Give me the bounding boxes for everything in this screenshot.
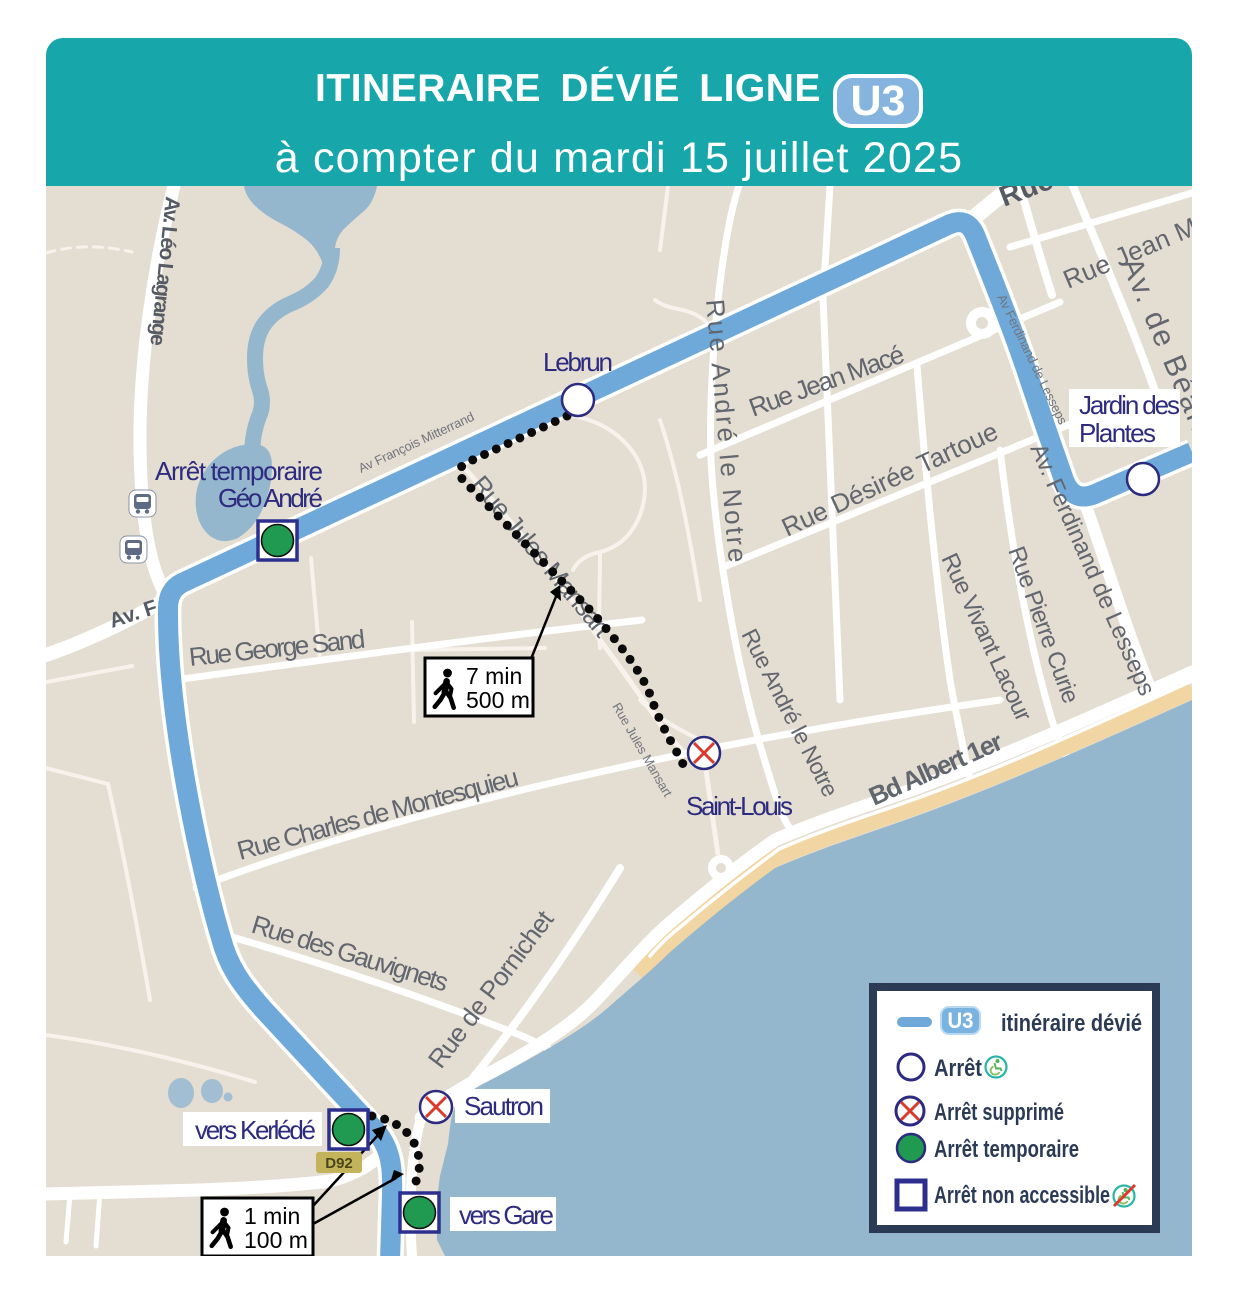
svg-text:Sautron: Sautron bbox=[464, 1091, 544, 1121]
svg-text:itinéraire dévié: itinéraire dévié bbox=[1001, 1010, 1142, 1037]
svg-text:U3: U3 bbox=[948, 1008, 974, 1033]
svg-text:Arrêt: Arrêt bbox=[934, 1055, 982, 1082]
svg-text:100 m: 100 m bbox=[244, 1227, 308, 1253]
svg-text:Arrêt temporaire: Arrêt temporaire bbox=[934, 1136, 1079, 1163]
svg-text:7 min: 7 min bbox=[466, 663, 522, 689]
svg-text:Lebrun: Lebrun bbox=[543, 347, 613, 377]
svg-text:D92: D92 bbox=[325, 1155, 353, 1172]
svg-text:vers Gare: vers Gare bbox=[459, 1200, 554, 1230]
svg-text:Plantes: Plantes bbox=[1079, 418, 1156, 448]
svg-text:Géo André: Géo André bbox=[218, 483, 323, 513]
svg-text:Arrêt non accessible: Arrêt non accessible bbox=[934, 1182, 1110, 1209]
svg-text:1 min: 1 min bbox=[244, 1203, 300, 1229]
svg-text:Arrêt temporaire: Arrêt temporaire bbox=[155, 456, 323, 486]
svg-text:500 m: 500 m bbox=[466, 687, 530, 713]
svg-text:Arrêt supprimé: Arrêt supprimé bbox=[934, 1099, 1064, 1126]
svg-text:Jardin des: Jardin des bbox=[1079, 390, 1180, 420]
svg-text:Saint-Louis: Saint-Louis bbox=[686, 791, 793, 821]
svg-text:vers Kerlédé: vers Kerlédé bbox=[195, 1115, 316, 1145]
